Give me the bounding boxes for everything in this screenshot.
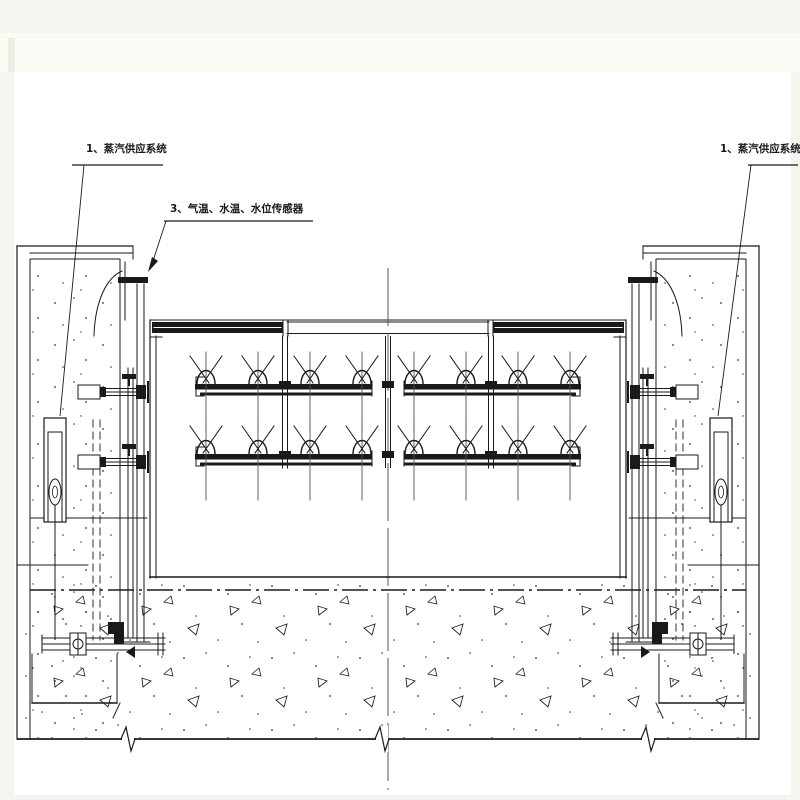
label-sensors: 3、气温、水温、水位传感器 [170,202,304,215]
page-top-band [0,33,800,72]
page-edge-shadow [8,38,15,72]
drawing-sheet: 1、蒸汽供应系统 3、气温、水温、水位传感器 1、蒸汽供应系统 [0,0,800,800]
cad-drawing: 1、蒸汽供应系统 3、气温、水温、水位传感器 1、蒸汽供应系统 [0,0,800,800]
label-steam-supply-right: 1、蒸汽供应系统 [720,142,800,155]
label-steam-supply-left: 1、蒸汽供应系统 [86,142,167,155]
ground-line [17,726,759,752]
